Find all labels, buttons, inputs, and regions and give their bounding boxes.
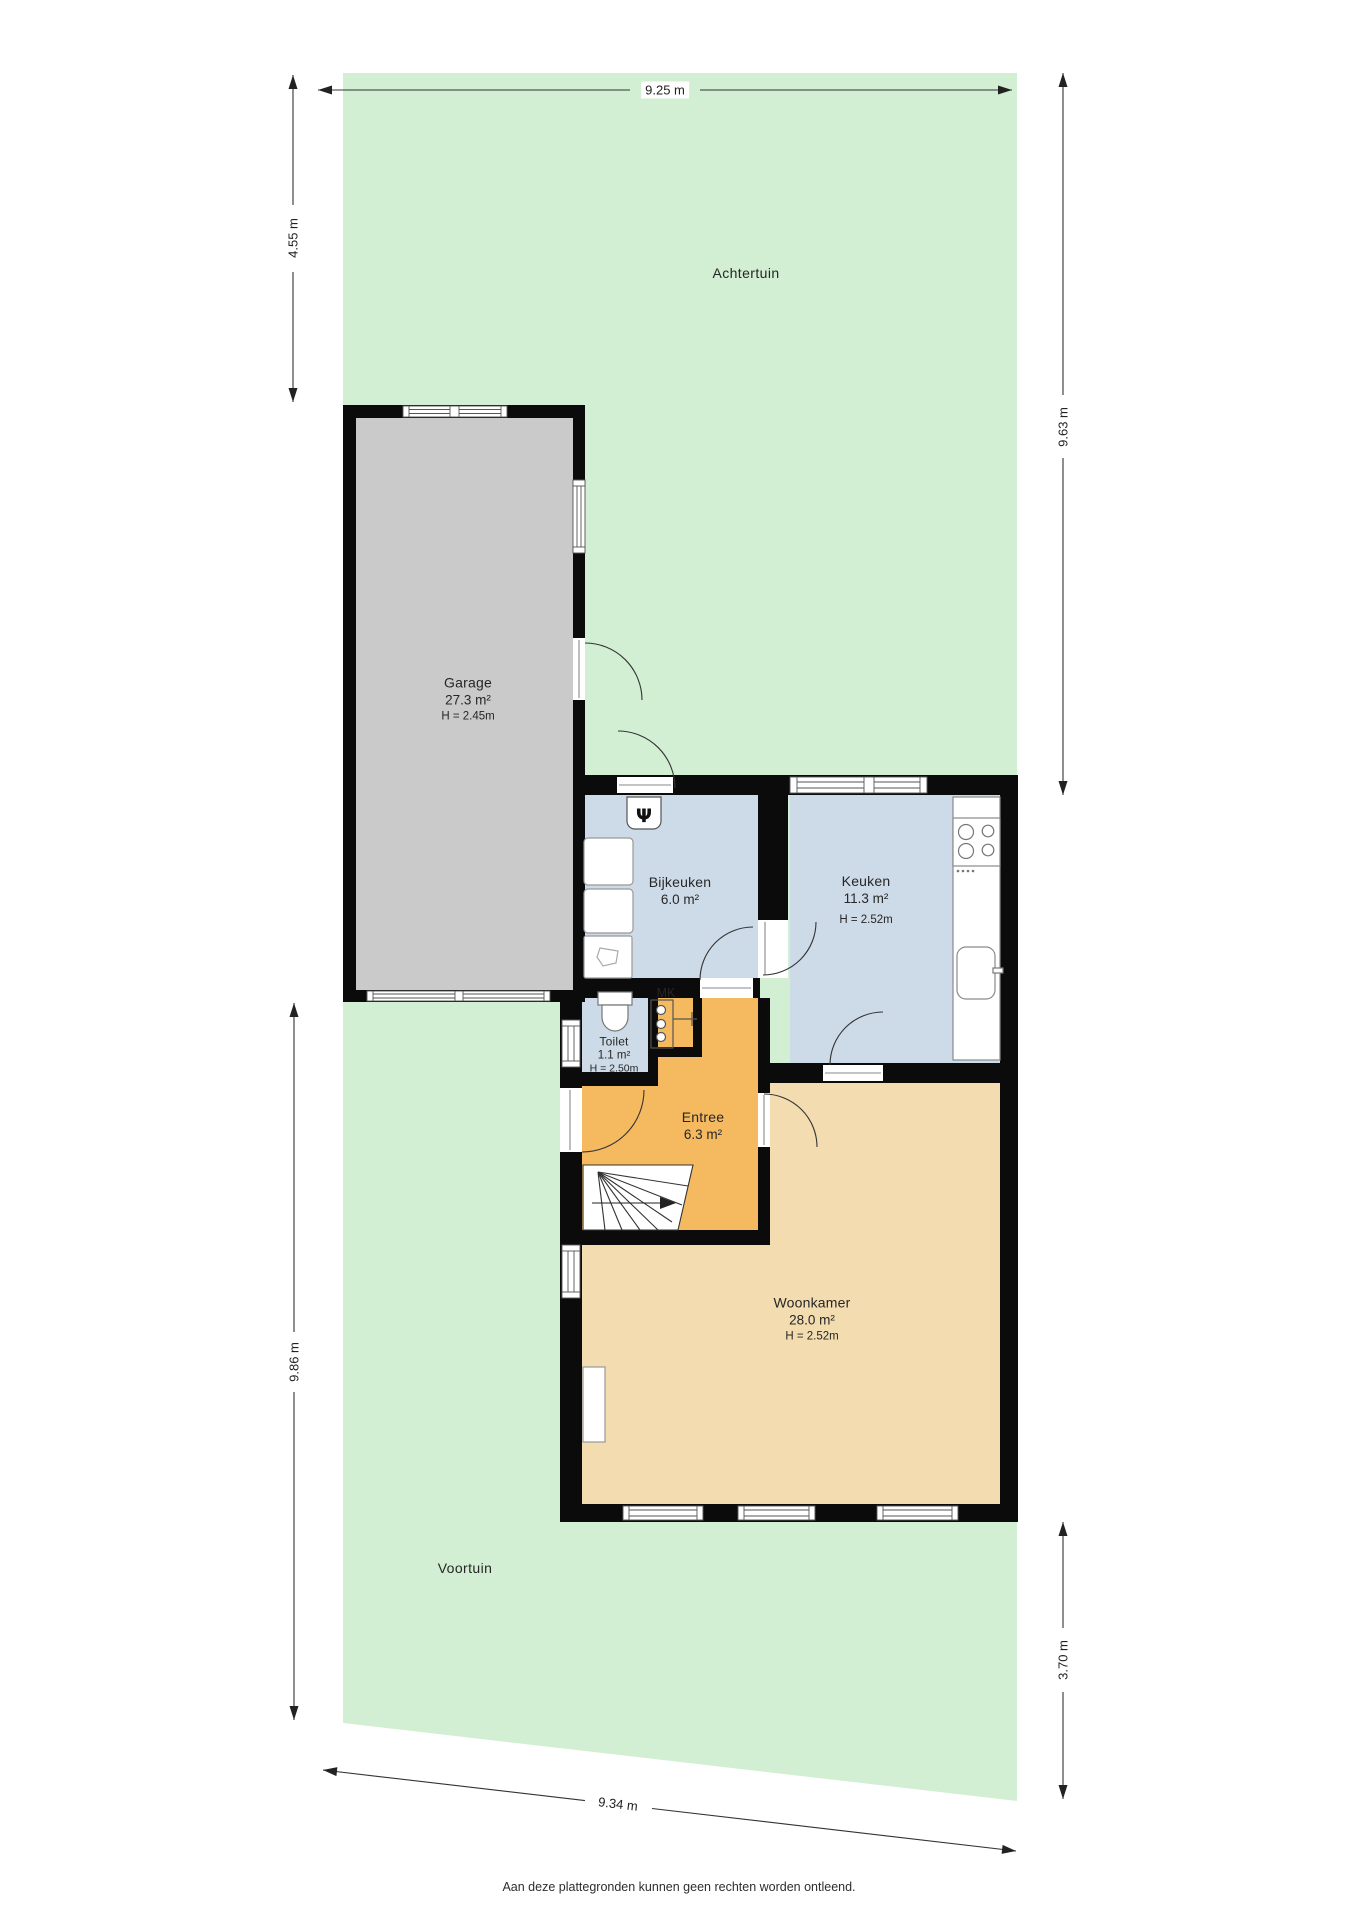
staircase [583, 1165, 693, 1230]
radiator [583, 1367, 605, 1442]
entree-area: 6.3 m² [684, 1126, 722, 1144]
dimension-right-upper: 9.63 m [1055, 403, 1072, 451]
dryer [584, 889, 633, 933]
garage-height: H = 2.45m [441, 709, 494, 724]
toilet-tank [598, 992, 632, 1005]
keuken-height: H = 2.52m [839, 913, 892, 928]
keuken-label: Keuken 11.3 m² H = 2.52m [839, 872, 892, 928]
keuken-area: 11.3 m² [844, 890, 889, 908]
floorplan-canvas: Ψ Achtertuin Voortuin Garage 27.3 m² H =… [0, 0, 1358, 1920]
woonkamer-name: Woonkamer [773, 1294, 850, 1312]
dimension-right-lower: 3.70 m [1055, 1636, 1072, 1684]
toilet-name: Toilet [599, 1035, 628, 1049]
voortuin-label: Voortuin [438, 1560, 493, 1576]
bijkeuken-label: Bijkeuken 6.0 m² [649, 873, 712, 909]
washer [584, 838, 633, 885]
entree-name: Entree [682, 1108, 724, 1126]
laundry-tub [584, 936, 632, 978]
toilet-area: 1.1 m² [598, 1049, 631, 1062]
bijkeuken-name: Bijkeuken [649, 873, 712, 891]
sink [957, 947, 995, 999]
dimension-left-lower: 9.86 m [286, 1338, 303, 1386]
achtertuin-label: Achtertuin [712, 265, 779, 281]
disclaimer-text: Aan deze plattegronden kunnen geen recht… [0, 1880, 1358, 1894]
toilet-label: Toilet 1.1 m² H = 2.50m [590, 1035, 639, 1074]
keuken-name: Keuken [842, 872, 891, 890]
garage-label: Garage 27.3 m² H = 2.45m [441, 674, 494, 725]
garage-name: Garage [444, 674, 492, 692]
meter-closet-label: MK [657, 986, 676, 1000]
stove [953, 818, 1000, 866]
floorplan-drawing: Ψ [0, 0, 1358, 1920]
woonkamer-label: Woonkamer 28.0 m² H = 2.52m [773, 1294, 850, 1345]
dimension-top: 9.25 m [641, 82, 689, 99]
woonkamer-area: 28.0 m² [789, 1312, 835, 1330]
bijkeuken-area: 6.0 m² [661, 891, 699, 909]
boiler-icon: Ψ [636, 805, 652, 827]
woonkamer-height: H = 2.52m [785, 1329, 838, 1344]
garage-area: 27.3 m² [445, 692, 491, 710]
entree-label: Entree 6.3 m² [682, 1108, 724, 1144]
toilet-height: H = 2.50m [590, 1062, 639, 1074]
toilet-bowl [602, 1005, 628, 1031]
dimension-left-upper: 4.55 m [285, 214, 302, 262]
